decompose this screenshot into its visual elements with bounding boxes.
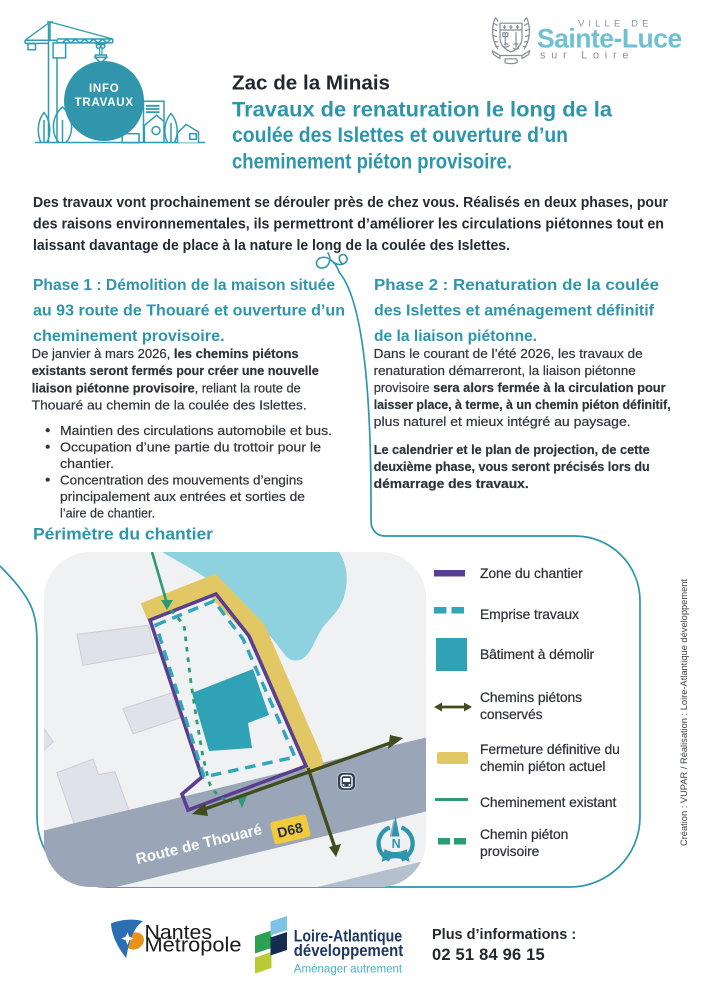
svg-text:Le calendrier et le plan de pr: Le calendrier et le plan de projection, … [374, 442, 650, 457]
svg-text:Aménager autrement: Aménager autrement [294, 961, 403, 975]
svg-text:chantier.: chantier. [60, 456, 114, 471]
svg-text:Occupation d’une partie du tro: Occupation d’une partie du trottoir pour… [60, 439, 321, 454]
svg-text:principalement aux entrées et: principalement aux entrées et sorties de [60, 489, 305, 504]
svg-text:l’aire de chantier.: l’aire de chantier. [60, 505, 155, 520]
svg-text:démarrage des travaux.: démarrage des travaux. [374, 476, 529, 491]
svg-text:provisoire sera alors fermée à: provisoire sera alors fermée à la circul… [374, 380, 666, 395]
svg-text:Métropole: Métropole [145, 935, 242, 957]
svg-text:renaturation démarreront, la l: renaturation démarreront, la liaison pié… [374, 363, 636, 378]
svg-text:laisser place, à terme, à un c: laisser place, à terme, à un chemin piét… [374, 397, 671, 412]
svg-text:N: N [392, 837, 401, 851]
svg-text:plus naturel et mieux intégré: plus naturel et mieux intégré au paysage… [374, 414, 631, 429]
svg-text:deuxième phase, vous seront pr: deuxième phase, vous seront précisés lor… [374, 459, 650, 474]
svg-text:Maintien des circulations auto: Maintien des circulations automobile et … [60, 423, 332, 438]
svg-text:Dans le courant de l’été 2026,: Dans le courant de l’été 2026, les trava… [374, 346, 643, 361]
svg-text:Concentration des mouvements d: Concentration des mouvements d’engins [60, 472, 303, 487]
svg-text:développement: développement [294, 941, 404, 960]
